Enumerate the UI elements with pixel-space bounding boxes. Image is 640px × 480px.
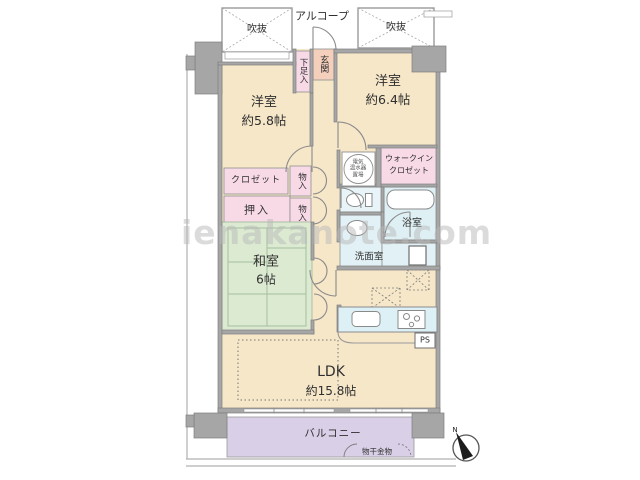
washroom-label: 洗面室 (355, 250, 384, 263)
alcove-label: アルコープ (295, 8, 349, 23)
closet-label: クロゼット (231, 175, 281, 188)
void-right-label: 吹抜 (386, 21, 406, 35)
laundry-hardware-label: 物干金物 (362, 447, 392, 458)
japanese-room-name: 和室 (253, 254, 279, 272)
compass-icon (453, 432, 479, 461)
water-heater-line2: 温水器 (350, 166, 367, 172)
bathroom-label: 浴室 (402, 217, 422, 231)
entrance-label: 玄関 (317, 55, 330, 73)
ldk-name: LDK (306, 363, 357, 383)
storage-bottom-label: 物入 (295, 205, 307, 222)
water-heater-line3: 置場 (350, 172, 367, 178)
western-room-1-label: 洋室 約5.8帖 (242, 94, 287, 130)
western-room-2-name: 洋室 (366, 73, 411, 91)
japanese-room-size: 6帖 (253, 272, 279, 289)
floor-plan: ienakanote.com アルコープ 吹抜 吹抜 玄関 下足入 洋室 約5.… (0, 0, 640, 480)
ldk-label: LDK 約15.8帖 (306, 363, 357, 399)
compass-north-label: N (452, 426, 457, 436)
void-left-label: 吹抜 (247, 23, 267, 37)
pipe-space-label: PS (420, 334, 430, 345)
water-heater-label: 電気 温水器 置場 (350, 160, 367, 179)
walk-in-closet-label: ウォークイン クロゼット (385, 153, 433, 177)
western-room-1-size: 約5.8帖 (242, 112, 287, 130)
oshiire-label: 押入 (244, 202, 270, 217)
western-room-2-label: 洋室 約6.4帖 (366, 73, 411, 109)
walk-in-closet-line2: クロゼット (385, 165, 433, 177)
watermark: ienakanote.com (181, 213, 492, 252)
japanese-room-label: 和室 6帖 (253, 254, 279, 289)
balcony-label: バルコニー (304, 427, 361, 442)
ldk-size: 約15.8帖 (306, 382, 357, 399)
western-room-1-name: 洋室 (242, 94, 287, 112)
storage-top-label: 物入 (295, 173, 307, 190)
walk-in-closet-line1: ウォークイン (385, 153, 433, 165)
bathtub-icon (387, 190, 434, 209)
western-room-2-size: 約6.4帖 (366, 91, 411, 109)
shoe-cabinet-label: 下足入 (296, 58, 308, 84)
